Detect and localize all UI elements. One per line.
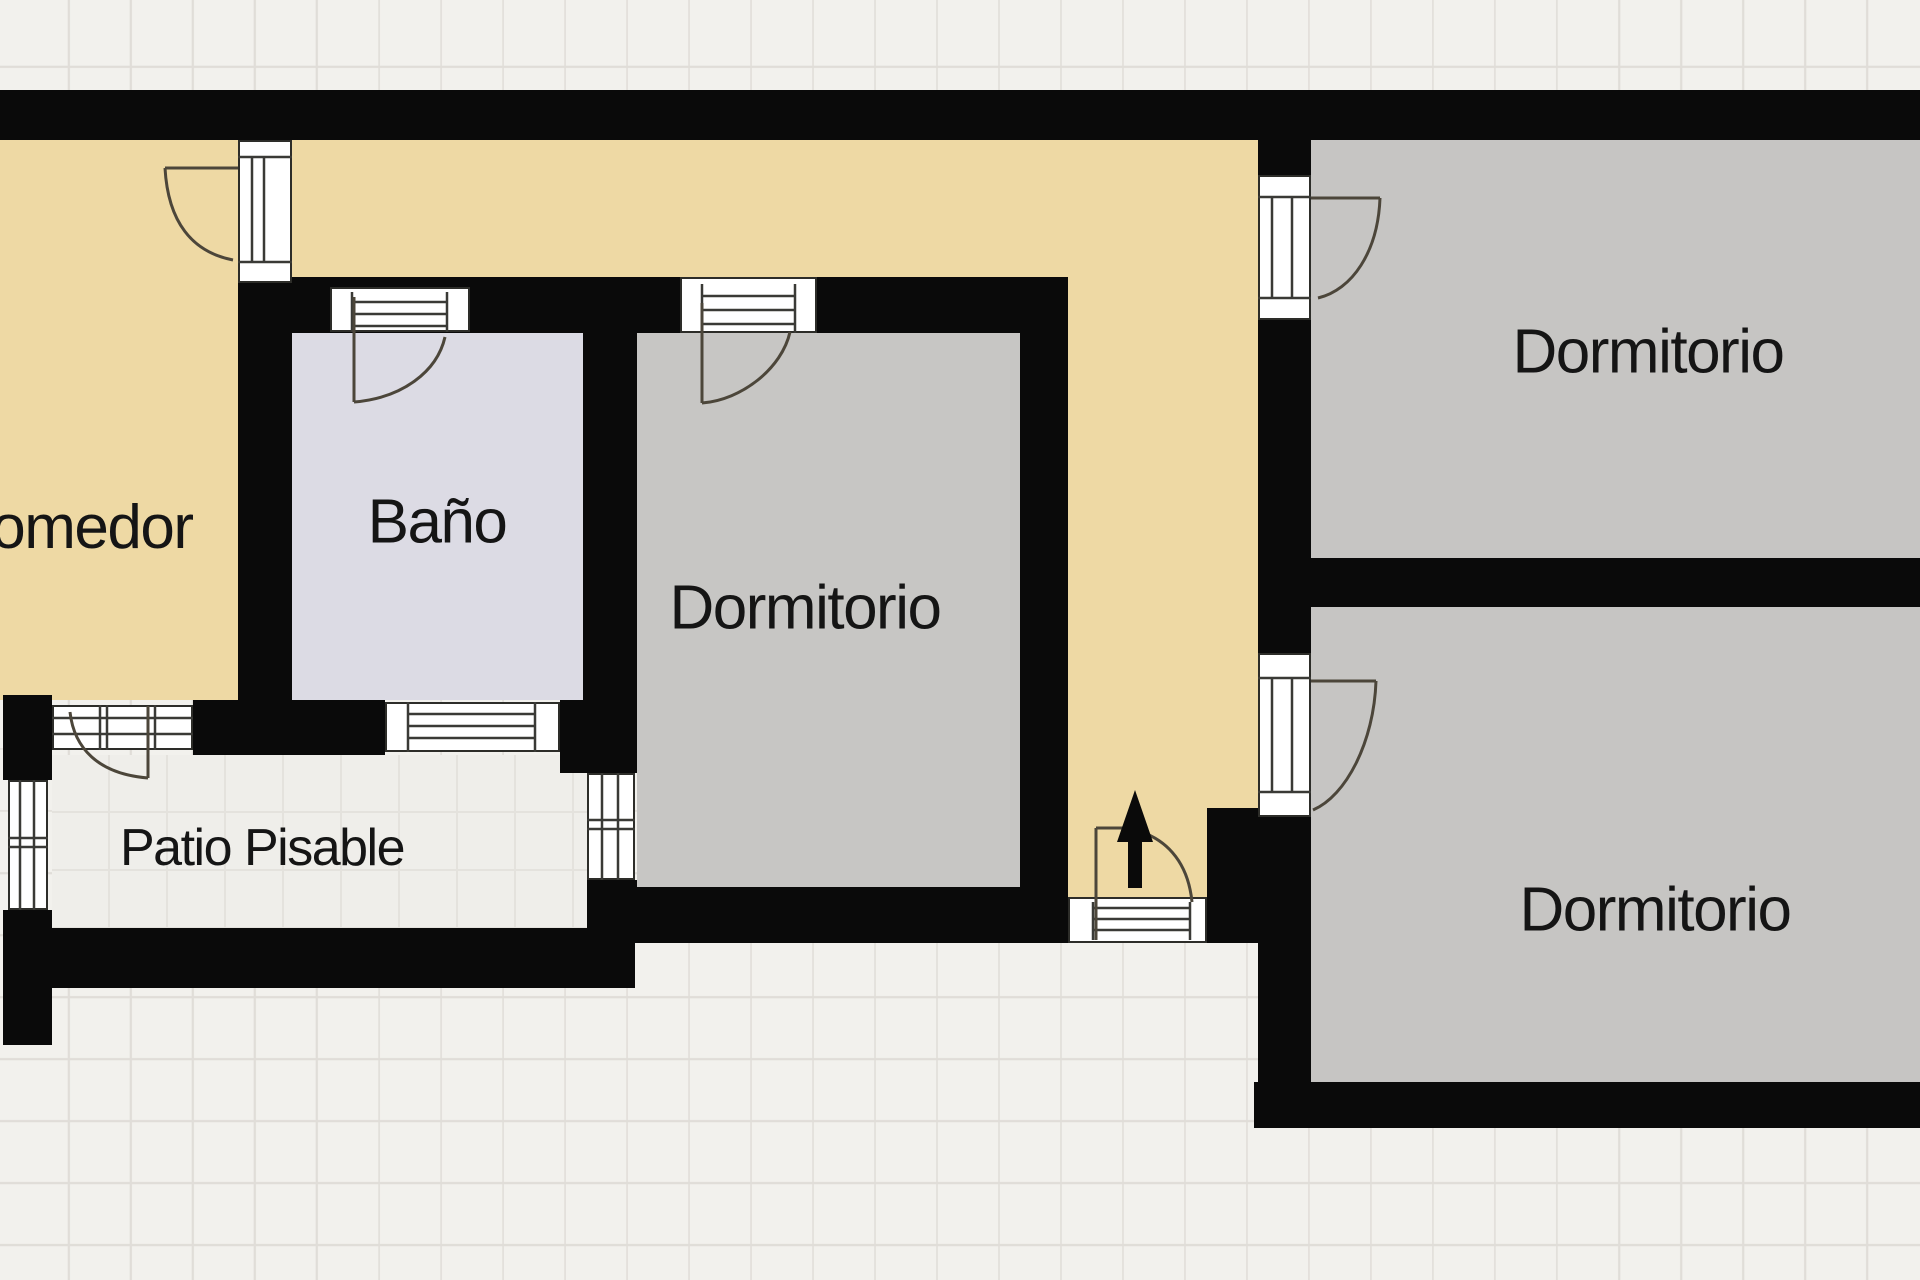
floor-plan-canvas: Comedor Baño Dormitorio Dormitorio Dormi… [0, 0, 1920, 1280]
hallway-corridor [1068, 277, 1258, 897]
room-label-patio: Patio Pisable [120, 818, 404, 878]
wall-dorm-center-bottom [590, 887, 1068, 943]
wall-comedor-bano-divider [238, 283, 292, 700]
wall-patio-bottom [43, 928, 635, 988]
room-label-dormitorio-bottom-right: Dormitorio [1520, 875, 1791, 946]
door-dormitorio-center [680, 277, 817, 333]
door-dormitorio-bottom-right [1258, 653, 1311, 817]
wall-patio-left-top [3, 695, 52, 780]
door-entrance [1068, 897, 1207, 943]
door-comedor-hall [238, 140, 292, 283]
room-label-dormitorio-center: Dormitorio [670, 573, 941, 644]
wall-right-dorms-divider [1298, 558, 1920, 607]
hallway-top-strip [292, 140, 1258, 277]
room-label-dormitorio-top-right: Dormitorio [1513, 317, 1784, 388]
wall-bano-bottom [193, 700, 385, 755]
wall-top [0, 90, 1920, 140]
wall-bano-bottom-corner [560, 700, 637, 773]
room-label-comedor: Comedor [0, 492, 193, 563]
window-patio-left [8, 780, 48, 910]
window-patio-right [587, 773, 635, 880]
wall-bottom-right-dorm-bottom [1254, 1082, 1920, 1128]
room-dormitorio-bottom-right [1311, 607, 1920, 1082]
window-bano-bottom [385, 702, 560, 752]
door-dormitorio-top-right [1258, 175, 1311, 320]
room-label-bano: Baño [368, 487, 507, 558]
window-patio-top [52, 705, 193, 750]
wall-dorm-center-right [1020, 277, 1068, 943]
room-comedor [0, 140, 238, 700]
door-bano [330, 287, 470, 332]
